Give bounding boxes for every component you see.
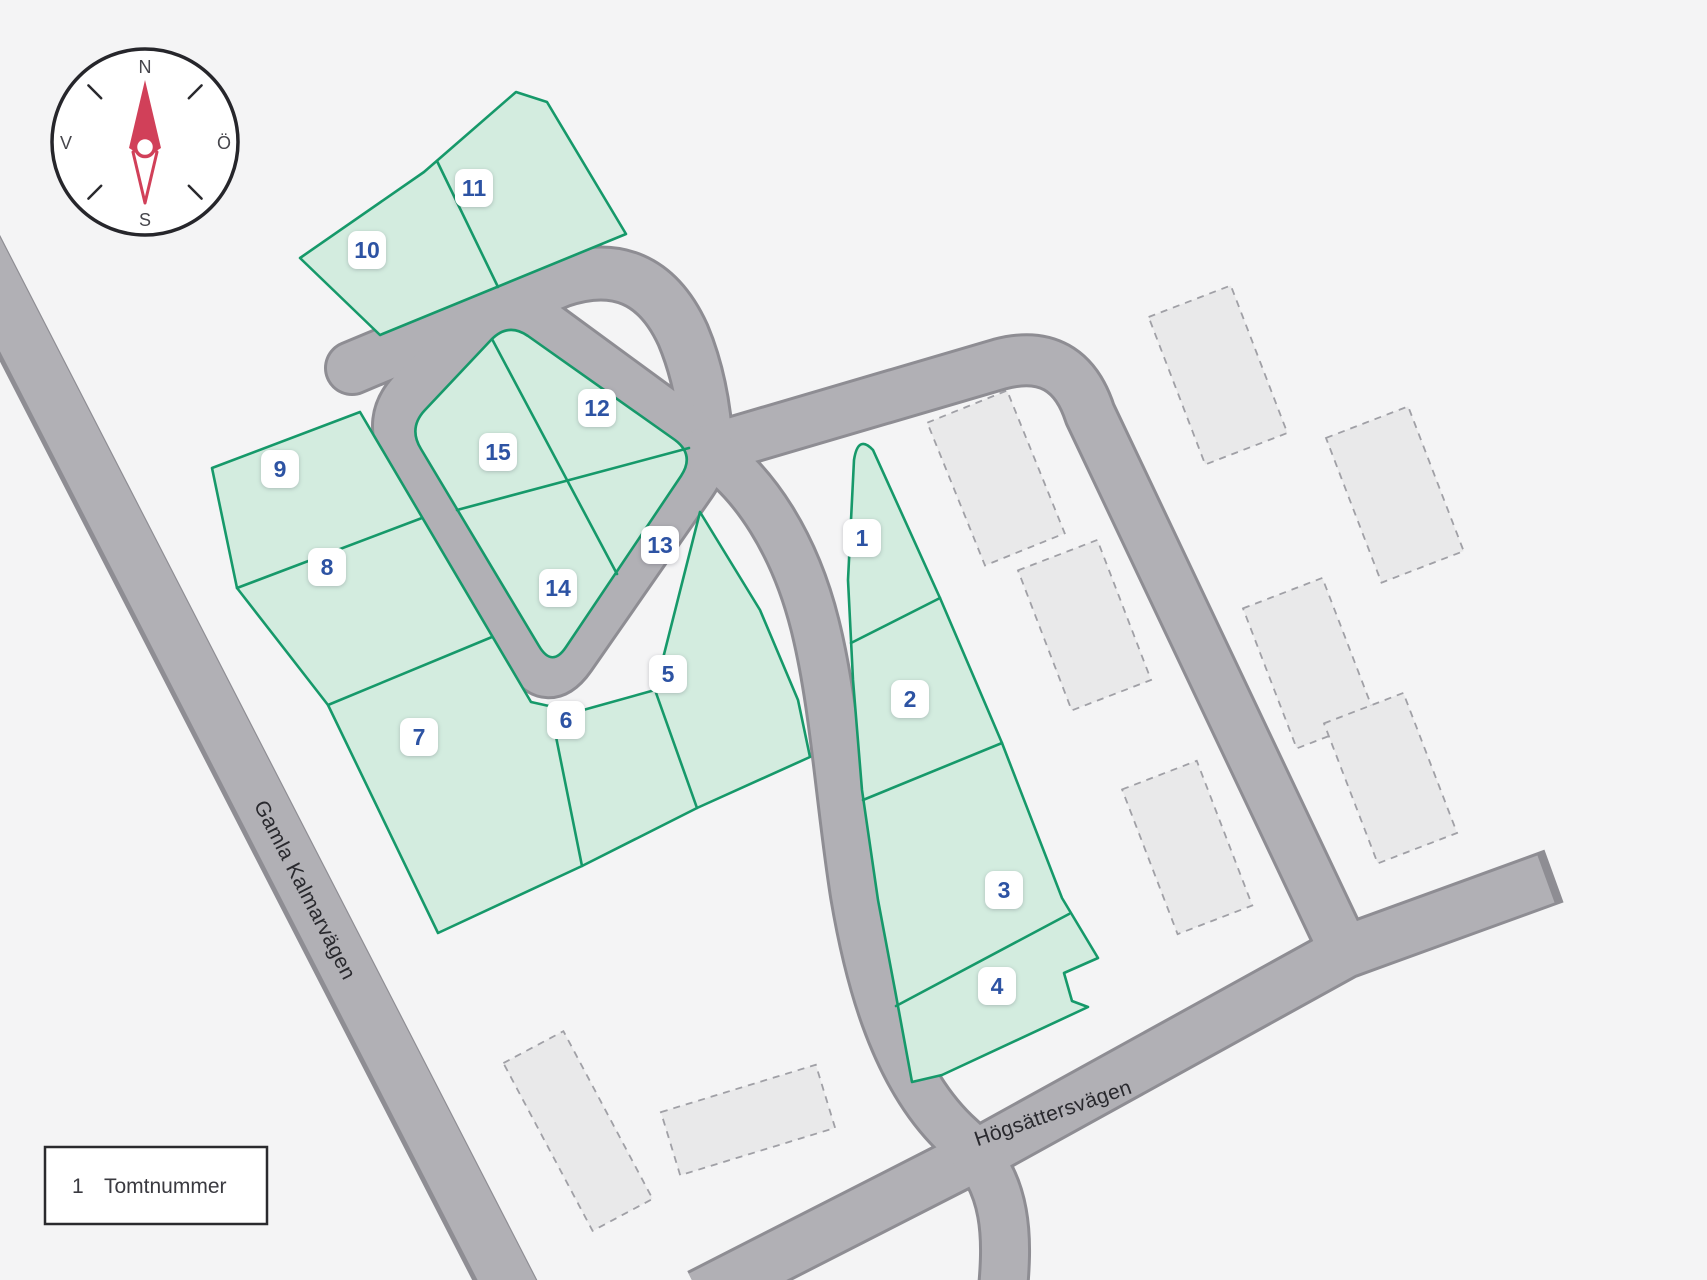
plot-badge-8[interactable]: 8 <box>308 548 346 586</box>
plot-badge-12[interactable]: 12 <box>578 389 616 427</box>
compass-label-east: Ö <box>217 133 231 153</box>
plot-badge-number: 15 <box>485 439 511 465</box>
legend-key: 1 <box>72 1175 84 1198</box>
plot-badge-number: 10 <box>354 237 380 263</box>
site-plan-map: 123456789101112131415 Gamla Kalmarvägen … <box>0 0 1707 1280</box>
plot-badge-9[interactable]: 9 <box>261 450 299 488</box>
plot-badge-11[interactable]: 11 <box>455 169 493 207</box>
plot-badge-number: 6 <box>560 707 573 733</box>
plot-badge-3[interactable]: 3 <box>985 871 1023 909</box>
compass-needle-hub-icon <box>136 138 155 157</box>
legend: 1 Tomtnummer <box>45 1147 267 1224</box>
plot-badge-6[interactable]: 6 <box>547 701 585 739</box>
plot-badge-number: 13 <box>647 532 673 558</box>
plot-badge-number: 1 <box>856 525 869 551</box>
plot-badge-number: 8 <box>321 554 334 580</box>
plot-badge-1[interactable]: 1 <box>843 519 881 557</box>
plot-badge-number: 14 <box>545 575 571 601</box>
plot-badge-10[interactable]: 10 <box>348 231 386 269</box>
compass: N Ö S V <box>52 49 238 235</box>
plot-badge-number: 4 <box>991 973 1004 999</box>
map-canvas: 123456789101112131415 Gamla Kalmarvägen … <box>0 0 1707 1280</box>
plot-badge-number: 2 <box>904 686 917 712</box>
plot-badge-number: 7 <box>413 724 426 750</box>
plot-badge-number: 9 <box>274 456 287 482</box>
plot-badge-2[interactable]: 2 <box>891 680 929 718</box>
plot-badge-7[interactable]: 7 <box>400 718 438 756</box>
plot-badge-number: 3 <box>998 877 1011 903</box>
legend-label: Tomtnummer <box>104 1175 227 1198</box>
compass-label-north: N <box>139 57 152 77</box>
plot-badge-15[interactable]: 15 <box>479 433 517 471</box>
plot-badge-4[interactable]: 4 <box>978 967 1016 1005</box>
plot-badge-5[interactable]: 5 <box>649 655 687 693</box>
plot-badge-13[interactable]: 13 <box>641 526 679 564</box>
compass-label-west: V <box>60 133 72 153</box>
plot-badge-14[interactable]: 14 <box>539 569 577 607</box>
plot-badge-number: 11 <box>462 175 487 201</box>
plot-badge-number: 12 <box>584 395 610 421</box>
compass-label-south: S <box>139 210 151 230</box>
plot-badge-number: 5 <box>662 661 675 687</box>
